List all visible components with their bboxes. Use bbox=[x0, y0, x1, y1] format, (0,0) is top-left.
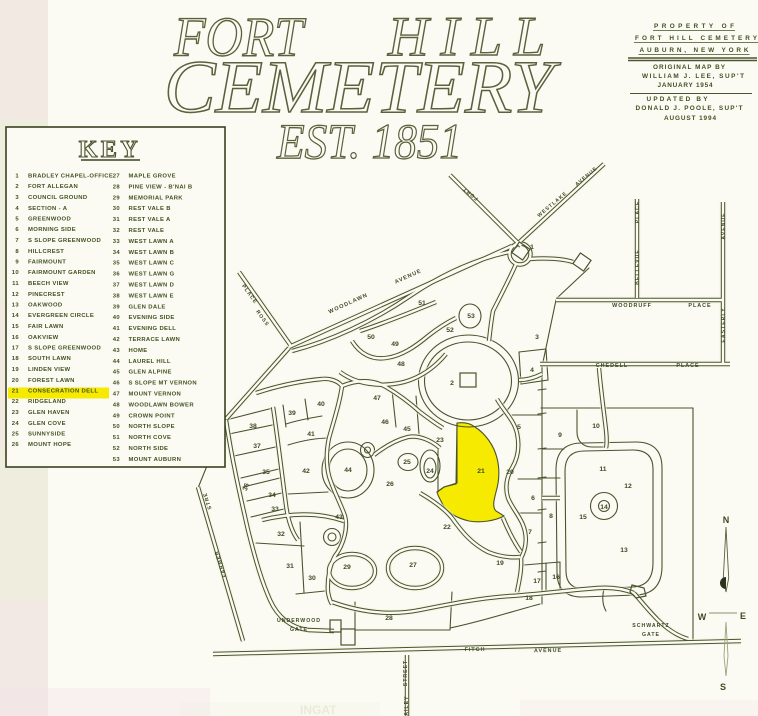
svg-text:38: 38 bbox=[113, 293, 121, 299]
svg-text:EVENING DELL: EVENING DELL bbox=[129, 326, 177, 332]
svg-text:20: 20 bbox=[12, 378, 20, 384]
svg-text:FORT ALLEGAN: FORT ALLEGAN bbox=[28, 184, 78, 190]
svg-text:PLACE: PLACE bbox=[635, 201, 641, 224]
svg-text:25: 25 bbox=[12, 432, 20, 438]
svg-text:N: N bbox=[723, 515, 730, 525]
svg-text:15: 15 bbox=[12, 324, 20, 330]
svg-text:26: 26 bbox=[386, 481, 394, 488]
svg-text:48: 48 bbox=[113, 402, 121, 408]
svg-text:40: 40 bbox=[317, 401, 325, 408]
svg-text:4: 4 bbox=[15, 206, 19, 212]
svg-text:34: 34 bbox=[268, 492, 276, 499]
svg-text:LAUREL HILL: LAUREL HILL bbox=[129, 359, 171, 365]
svg-text:45: 45 bbox=[113, 370, 121, 376]
svg-text:MOUNT VERNON: MOUNT VERNON bbox=[129, 392, 182, 398]
svg-text:34: 34 bbox=[113, 250, 121, 256]
svg-text:13: 13 bbox=[620, 547, 628, 554]
svg-text:INGAT: INGAT bbox=[300, 703, 337, 716]
svg-text:WEST LAWN B: WEST LAWN B bbox=[129, 250, 175, 256]
svg-text:28: 28 bbox=[113, 184, 121, 190]
svg-text:3: 3 bbox=[15, 195, 19, 201]
svg-text:23: 23 bbox=[12, 410, 20, 416]
svg-text:33: 33 bbox=[113, 239, 121, 245]
svg-text:52: 52 bbox=[446, 327, 454, 334]
svg-text:EVENING SIDE: EVENING SIDE bbox=[129, 315, 175, 321]
svg-text:WOODLAWN BOWER: WOODLAWN BOWER bbox=[129, 402, 195, 408]
svg-text:48: 48 bbox=[397, 361, 405, 368]
svg-text:DONALD J. POOLE, SUP'T: DONALD J. POOLE, SUP'T bbox=[636, 105, 743, 112]
svg-text:24: 24 bbox=[12, 421, 20, 427]
svg-text:18: 18 bbox=[12, 356, 20, 362]
svg-text:29: 29 bbox=[113, 195, 121, 201]
svg-text:13: 13 bbox=[12, 303, 20, 309]
svg-text:51: 51 bbox=[113, 435, 121, 441]
svg-text:E: E bbox=[740, 611, 746, 621]
svg-text:50: 50 bbox=[113, 424, 121, 430]
svg-text:42: 42 bbox=[113, 337, 121, 343]
svg-text:LINDEN VIEW: LINDEN VIEW bbox=[28, 367, 71, 373]
svg-text:29: 29 bbox=[343, 564, 351, 571]
svg-text:37: 37 bbox=[253, 443, 261, 450]
svg-text:FAIRMOUNT GARDEN: FAIRMOUNT GARDEN bbox=[28, 270, 96, 276]
svg-text:7: 7 bbox=[15, 238, 19, 244]
svg-text:46: 46 bbox=[381, 419, 389, 426]
svg-text:EST. 1851: EST. 1851 bbox=[276, 113, 462, 169]
svg-text:51: 51 bbox=[418, 300, 426, 307]
svg-text:MOUNT HOPE: MOUNT HOPE bbox=[28, 442, 71, 448]
svg-text:HOME: HOME bbox=[129, 348, 148, 354]
svg-text:FAIR LAWN: FAIR LAWN bbox=[28, 324, 64, 330]
svg-text:35: 35 bbox=[262, 469, 270, 476]
svg-text:35: 35 bbox=[113, 261, 121, 267]
svg-text:27: 27 bbox=[409, 562, 417, 569]
svg-text:HILLCREST: HILLCREST bbox=[28, 249, 64, 255]
svg-text:5: 5 bbox=[15, 217, 19, 223]
svg-text:MOUNT AUBURN: MOUNT AUBURN bbox=[129, 457, 182, 463]
svg-text:OAKVIEW: OAKVIEW bbox=[28, 335, 59, 341]
svg-text:JANUARY 1954: JANUARY 1954 bbox=[658, 82, 713, 89]
svg-text:GLEN ALPINE: GLEN ALPINE bbox=[129, 370, 172, 376]
svg-text:SECTION - A: SECTION - A bbox=[28, 206, 68, 212]
svg-text:EASTERLY: EASTERLY bbox=[721, 307, 727, 342]
svg-text:9: 9 bbox=[558, 432, 562, 439]
svg-text:2: 2 bbox=[450, 380, 454, 387]
svg-text:41: 41 bbox=[113, 326, 121, 332]
svg-text:10: 10 bbox=[592, 423, 600, 430]
svg-text:44: 44 bbox=[344, 467, 352, 474]
svg-text:8: 8 bbox=[549, 513, 553, 520]
svg-text:32: 32 bbox=[113, 228, 121, 234]
svg-text:30: 30 bbox=[113, 206, 121, 212]
svg-text:46: 46 bbox=[113, 381, 121, 387]
svg-text:SUNNYSIDE: SUNNYSIDE bbox=[28, 432, 66, 438]
svg-text:27: 27 bbox=[113, 174, 121, 180]
svg-text:GATE: GATE bbox=[642, 632, 660, 638]
svg-text:S SLOPE GREENWOOD: S SLOPE GREENWOOD bbox=[28, 346, 101, 352]
svg-text:S SLOPE MT VERNON: S SLOPE MT VERNON bbox=[129, 381, 197, 387]
svg-text:53: 53 bbox=[467, 313, 475, 320]
svg-text:UNDERWOOD: UNDERWOOD bbox=[277, 618, 321, 624]
svg-text:25: 25 bbox=[403, 459, 411, 466]
svg-text:8: 8 bbox=[15, 249, 19, 255]
svg-text:22: 22 bbox=[443, 524, 451, 531]
svg-text:FITCH: FITCH bbox=[465, 647, 486, 653]
svg-text:WEST LAWN G: WEST LAWN G bbox=[129, 272, 175, 278]
svg-text:PROPERTY OF: PROPERTY OF bbox=[654, 23, 734, 30]
svg-text:REST VALE B: REST VALE B bbox=[129, 206, 171, 212]
svg-text:39: 39 bbox=[288, 410, 296, 417]
svg-text:OAKWOOD: OAKWOOD bbox=[28, 303, 63, 309]
svg-text:3: 3 bbox=[535, 334, 539, 341]
svg-text:MAPLE GROVE: MAPLE GROVE bbox=[129, 174, 176, 180]
svg-text:15: 15 bbox=[579, 514, 587, 521]
svg-text:38: 38 bbox=[249, 423, 257, 430]
svg-text:2: 2 bbox=[15, 184, 19, 190]
svg-text:32: 32 bbox=[277, 531, 285, 538]
svg-text:31: 31 bbox=[113, 217, 121, 223]
svg-text:WEST LAWN D: WEST LAWN D bbox=[129, 283, 175, 289]
svg-text:20: 20 bbox=[506, 469, 514, 476]
svg-text:SCHWARTZ: SCHWARTZ bbox=[632, 623, 669, 629]
svg-text:4: 4 bbox=[530, 367, 534, 374]
svg-text:NORTH SIDE: NORTH SIDE bbox=[129, 446, 169, 452]
svg-text:AUGUST 1994: AUGUST 1994 bbox=[664, 115, 716, 122]
svg-text:23: 23 bbox=[436, 437, 444, 444]
svg-text:WEST LAWN E: WEST LAWN E bbox=[129, 293, 174, 299]
svg-text:GATE: GATE bbox=[290, 627, 308, 633]
svg-text:45: 45 bbox=[403, 426, 411, 433]
svg-text:19: 19 bbox=[496, 560, 504, 567]
svg-text:17: 17 bbox=[533, 578, 541, 585]
svg-text:BEECH VIEW: BEECH VIEW bbox=[28, 281, 69, 287]
svg-text:42: 42 bbox=[302, 468, 310, 475]
svg-text:53: 53 bbox=[113, 457, 121, 463]
svg-text:24: 24 bbox=[426, 468, 434, 475]
svg-text:37: 37 bbox=[113, 283, 121, 289]
svg-text:47: 47 bbox=[113, 392, 121, 398]
svg-text:WEST LAWN A: WEST LAWN A bbox=[129, 239, 175, 245]
svg-text:7: 7 bbox=[528, 529, 532, 536]
svg-text:CHEDELL: CHEDELL bbox=[596, 363, 628, 369]
svg-text:SOUTH LAWN: SOUTH LAWN bbox=[28, 356, 71, 362]
svg-text:GLEN DALE: GLEN DALE bbox=[129, 304, 166, 310]
svg-text:S: S bbox=[720, 682, 726, 692]
svg-text:MEMORIAL PARK: MEMORIAL PARK bbox=[129, 195, 184, 201]
svg-text:12: 12 bbox=[12, 292, 20, 298]
svg-text:12: 12 bbox=[624, 483, 632, 490]
svg-text:WOODRUFF: WOODRUFF bbox=[612, 303, 652, 309]
svg-text:11: 11 bbox=[599, 466, 606, 473]
svg-text:21: 21 bbox=[477, 468, 485, 475]
svg-text:GREENWOOD: GREENWOOD bbox=[28, 217, 71, 223]
svg-text:17: 17 bbox=[12, 346, 20, 352]
svg-text:PINE VIEW - B'NAI B: PINE VIEW - B'NAI B bbox=[129, 184, 193, 190]
svg-text:9: 9 bbox=[15, 260, 19, 266]
svg-text:FOREST LAWN: FOREST LAWN bbox=[28, 378, 75, 384]
svg-text:18: 18 bbox=[525, 595, 533, 602]
svg-text:FORT HILL CEMETERY: FORT HILL CEMETERY bbox=[635, 35, 758, 42]
svg-text:NORTH SLOPE: NORTH SLOPE bbox=[129, 424, 175, 430]
svg-text:AUBURN, NEW YORK: AUBURN, NEW YORK bbox=[640, 47, 749, 54]
svg-text:MORNING SIDE: MORNING SIDE bbox=[28, 227, 76, 233]
svg-text:43: 43 bbox=[335, 514, 343, 521]
svg-text:49: 49 bbox=[391, 341, 399, 348]
svg-text:52: 52 bbox=[113, 446, 121, 452]
svg-text:CONSECRATION DELL: CONSECRATION DELL bbox=[28, 389, 98, 395]
svg-text:49: 49 bbox=[113, 413, 121, 419]
svg-text:WEST LAWN C: WEST LAWN C bbox=[129, 261, 175, 267]
svg-text:14: 14 bbox=[600, 504, 608, 511]
svg-text:44: 44 bbox=[113, 359, 121, 365]
svg-text:39: 39 bbox=[113, 304, 121, 310]
svg-text:PLACE: PLACE bbox=[688, 303, 711, 309]
svg-text:50: 50 bbox=[367, 334, 375, 341]
svg-text:47: 47 bbox=[373, 395, 381, 402]
svg-text:ORIGINAL MAP BY: ORIGINAL MAP BY bbox=[653, 64, 726, 71]
svg-text:43: 43 bbox=[113, 348, 121, 354]
svg-text:FAIRMOUNT: FAIRMOUNT bbox=[28, 260, 66, 266]
svg-text:16: 16 bbox=[12, 335, 20, 341]
svg-text:26: 26 bbox=[12, 442, 20, 448]
svg-text:1: 1 bbox=[530, 244, 534, 251]
svg-text:10: 10 bbox=[12, 270, 20, 276]
svg-text:KEY: KEY bbox=[79, 137, 142, 163]
svg-text:STREET: STREET bbox=[403, 660, 409, 686]
svg-text:31: 31 bbox=[286, 563, 294, 570]
svg-text:S SLOPE GREENWOOD: S SLOPE GREENWOOD bbox=[28, 238, 101, 244]
svg-text:28: 28 bbox=[385, 615, 393, 622]
svg-text:COUNCIL GROUND: COUNCIL GROUND bbox=[28, 195, 87, 201]
svg-text:EVERGREEN CIRCLE: EVERGREEN CIRCLE bbox=[28, 313, 94, 319]
svg-text:NORTH COVE: NORTH COVE bbox=[129, 435, 172, 441]
svg-text:RIDGELAND: RIDGELAND bbox=[28, 399, 66, 405]
svg-text:REST VALE A: REST VALE A bbox=[129, 217, 172, 223]
svg-text:PINECREST: PINECREST bbox=[28, 292, 65, 298]
svg-text:W: W bbox=[698, 612, 707, 622]
svg-text:11: 11 bbox=[12, 281, 19, 287]
svg-text:1: 1 bbox=[15, 174, 19, 180]
svg-text:40: 40 bbox=[113, 315, 121, 321]
svg-text:16: 16 bbox=[552, 574, 560, 581]
svg-text:BRADLEY CHAPEL-OFFICE: BRADLEY CHAPEL-OFFICE bbox=[28, 174, 113, 180]
svg-text:14: 14 bbox=[12, 313, 20, 319]
svg-text:TERRACE LAWN: TERRACE LAWN bbox=[129, 337, 181, 343]
svg-text:REST VALE: REST VALE bbox=[129, 228, 165, 234]
svg-text:19: 19 bbox=[12, 367, 20, 373]
svg-text:GLEN COVE: GLEN COVE bbox=[28, 421, 66, 427]
svg-text:21: 21 bbox=[12, 389, 20, 395]
svg-text:6: 6 bbox=[531, 495, 535, 502]
svg-text:GLEN HAVEN: GLEN HAVEN bbox=[28, 410, 70, 416]
svg-text:30: 30 bbox=[308, 575, 316, 582]
svg-text:AVENUE: AVENUE bbox=[534, 648, 562, 654]
svg-text:5: 5 bbox=[517, 424, 521, 431]
svg-text:BAILEY: BAILEY bbox=[404, 695, 410, 716]
svg-text:AVENUE: AVENUE bbox=[721, 212, 727, 239]
svg-text:33: 33 bbox=[271, 506, 279, 513]
svg-text:22: 22 bbox=[12, 399, 20, 405]
svg-text:BELLEVUE: BELLEVUE bbox=[635, 249, 641, 285]
svg-text:36: 36 bbox=[113, 272, 121, 278]
svg-text:CROWN POINT: CROWN POINT bbox=[129, 413, 175, 419]
svg-text:41: 41 bbox=[307, 431, 315, 438]
svg-text:6: 6 bbox=[15, 227, 19, 233]
svg-text:PLACE: PLACE bbox=[676, 363, 699, 369]
